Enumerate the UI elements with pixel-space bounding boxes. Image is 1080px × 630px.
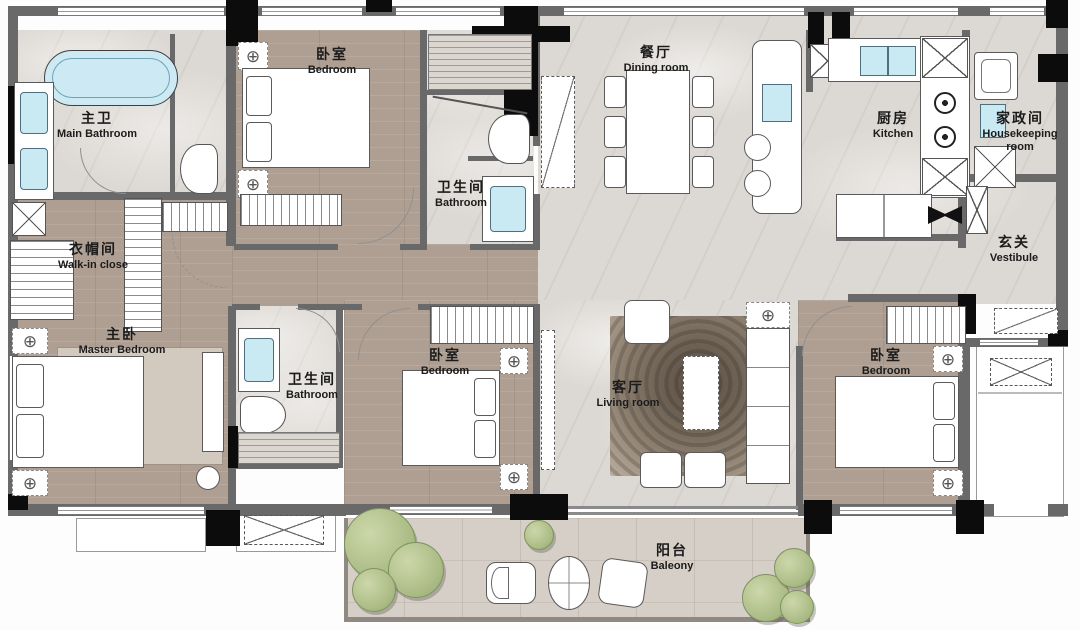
cabinet bbox=[974, 146, 1016, 188]
wardrobe bbox=[430, 306, 534, 344]
wall-seg bbox=[533, 304, 540, 510]
stool bbox=[196, 466, 220, 490]
column bbox=[510, 494, 568, 520]
chair bbox=[604, 116, 626, 148]
pillow bbox=[474, 378, 496, 416]
bush bbox=[524, 520, 554, 550]
nightstand bbox=[12, 328, 48, 354]
ottoman bbox=[684, 452, 726, 488]
entry-cabinet bbox=[966, 186, 988, 234]
pillow bbox=[246, 76, 272, 116]
bar-stool bbox=[744, 170, 771, 197]
kitchen-sink bbox=[860, 46, 916, 76]
bush bbox=[780, 590, 814, 624]
chair bbox=[604, 156, 626, 188]
sofa bbox=[746, 328, 790, 484]
entry-bench bbox=[994, 308, 1058, 334]
armchair bbox=[624, 300, 670, 344]
bush bbox=[774, 548, 814, 588]
toilet bbox=[488, 114, 530, 164]
wall-seg bbox=[848, 294, 960, 302]
wall-seg bbox=[232, 304, 260, 310]
floor-plan: 主卫 Main Bathroom 卧室 Bedroom 卫生间 Bathroom… bbox=[0, 0, 1080, 630]
chair bbox=[692, 116, 714, 148]
nightstand bbox=[238, 42, 268, 70]
wall-seg bbox=[470, 244, 540, 250]
column bbox=[956, 500, 984, 534]
pillow bbox=[933, 424, 955, 462]
column bbox=[1046, 0, 1068, 28]
ottoman bbox=[640, 452, 682, 488]
sink bbox=[20, 148, 48, 190]
chair-back-icon bbox=[491, 567, 509, 599]
lounge-chair bbox=[597, 557, 649, 609]
toilet bbox=[180, 144, 218, 194]
ac-unit-box bbox=[244, 515, 324, 545]
wall-seg bbox=[228, 306, 236, 512]
nightstand bbox=[500, 348, 528, 374]
chair bbox=[692, 156, 714, 188]
coffee-table bbox=[683, 356, 719, 430]
wardrobe bbox=[10, 240, 74, 320]
column bbox=[226, 0, 258, 46]
tv-cabinet bbox=[541, 330, 555, 470]
tree bbox=[388, 542, 444, 598]
column bbox=[228, 426, 238, 468]
nightstand bbox=[933, 470, 963, 496]
wardrobe bbox=[124, 198, 162, 332]
wall-bottom-right-b bbox=[1048, 504, 1068, 516]
bush bbox=[352, 568, 396, 612]
nightstand bbox=[12, 470, 48, 496]
window bbox=[58, 7, 224, 16]
balcony-slider bbox=[540, 506, 798, 509]
stove-burner bbox=[934, 126, 956, 148]
nightstand bbox=[933, 346, 963, 372]
washing-machine bbox=[974, 52, 1018, 100]
stove-burner bbox=[934, 92, 956, 114]
window bbox=[980, 339, 1038, 346]
counter-top bbox=[922, 158, 968, 196]
column bbox=[804, 500, 832, 534]
nightstand bbox=[500, 464, 528, 490]
sink bbox=[490, 186, 526, 232]
toilet bbox=[240, 396, 286, 434]
chair bbox=[604, 76, 626, 108]
pillow bbox=[933, 382, 955, 420]
ac-unit-box bbox=[990, 358, 1052, 386]
window bbox=[58, 506, 204, 515]
window bbox=[564, 7, 804, 16]
bathtub bbox=[44, 50, 178, 106]
side-table bbox=[746, 302, 790, 328]
chair bbox=[692, 76, 714, 108]
window bbox=[840, 506, 952, 515]
wall-seg bbox=[420, 30, 427, 246]
wardrobe bbox=[240, 194, 342, 226]
washer-drum-icon bbox=[981, 59, 1011, 93]
column bbox=[206, 510, 240, 546]
wall-seg bbox=[533, 194, 540, 246]
pillow bbox=[474, 420, 496, 458]
bench bbox=[202, 352, 224, 452]
window bbox=[262, 7, 362, 16]
oval-table bbox=[548, 556, 590, 610]
island-sink bbox=[762, 84, 792, 122]
sink bbox=[20, 92, 48, 134]
column bbox=[366, 0, 392, 12]
wall-seg bbox=[400, 244, 427, 250]
wall-seg bbox=[796, 346, 803, 510]
column bbox=[1038, 54, 1068, 82]
platform-line bbox=[978, 392, 1062, 394]
shaft-box bbox=[12, 202, 46, 236]
window bbox=[390, 506, 492, 514]
column bbox=[8, 494, 28, 510]
balcony-rail-bottom bbox=[344, 617, 810, 622]
wall-seg bbox=[234, 244, 338, 250]
bar-stool bbox=[744, 134, 771, 161]
dining-table bbox=[626, 70, 690, 194]
pillow bbox=[16, 414, 44, 458]
cabinet bbox=[541, 76, 575, 188]
bay-window-bottom-left bbox=[76, 518, 206, 552]
window bbox=[990, 7, 1044, 16]
pillow bbox=[16, 364, 44, 408]
utility-sink bbox=[980, 104, 1006, 138]
column bbox=[832, 12, 850, 38]
wall-seg bbox=[170, 34, 175, 192]
lounge-chair bbox=[486, 562, 536, 604]
kitchen-island-low bbox=[836, 194, 932, 238]
window bbox=[396, 7, 500, 16]
wardrobe bbox=[886, 306, 966, 344]
shower-floor bbox=[428, 34, 532, 90]
column bbox=[808, 12, 824, 48]
sink bbox=[244, 338, 274, 382]
floor-corridor bbox=[232, 244, 538, 306]
shower-floor bbox=[238, 432, 340, 464]
wardrobe bbox=[162, 202, 228, 232]
window bbox=[854, 7, 958, 16]
counter-top bbox=[922, 38, 968, 78]
pillow bbox=[246, 122, 272, 162]
balcony-slider bbox=[540, 512, 798, 515]
